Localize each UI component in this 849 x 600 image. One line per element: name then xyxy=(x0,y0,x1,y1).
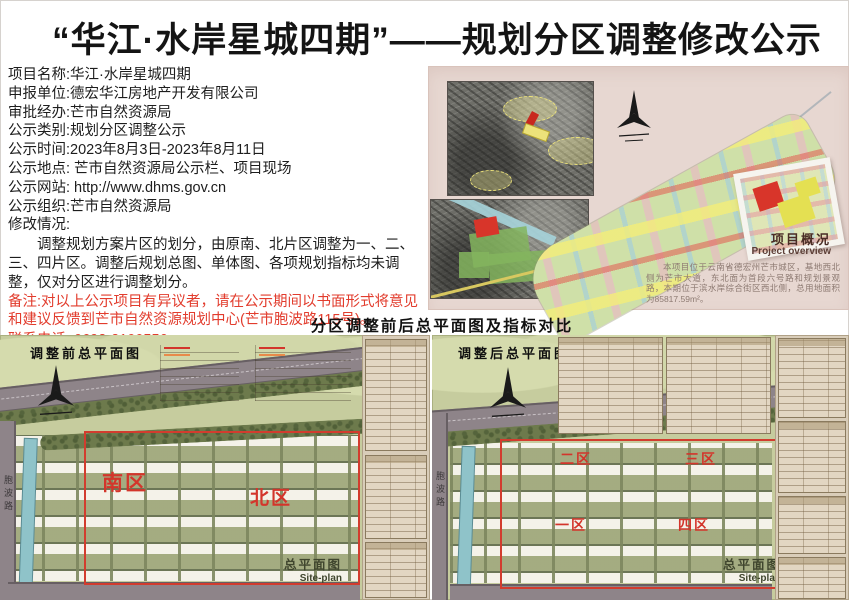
overview-description: 本项目位于云南省德宏州芒市城区，基地西北侧为芒市大道，东北面为首段六号路和规划景… xyxy=(646,262,840,304)
indicator-table xyxy=(365,455,427,539)
info-line-modification-heading: 修改情况: xyxy=(8,216,426,235)
site-plan-before: 调整前总平面图 南区 北区 胞波路 总平面图 Site-plan xyxy=(0,335,430,600)
zone-label-1: 一区 xyxy=(555,515,587,535)
plan-title-before: 调整前总平面图 xyxy=(30,343,142,362)
info-line-applicant: 申报单位:德宏华江房地产开发有限公司 xyxy=(8,85,426,104)
place-label-oval xyxy=(470,170,512,191)
indicator-table xyxy=(558,337,663,434)
info-line-location: 公示地点: 芒市自然资源局公示栏、项目现场 xyxy=(8,160,426,179)
indicator-table xyxy=(365,542,427,598)
plan-footer-zh: 总平面图 xyxy=(284,559,342,572)
zone-label-3: 三区 xyxy=(685,449,717,469)
indicator-table xyxy=(778,338,846,418)
info-line-website: 公示网站: http://www.dhms.gov.cn xyxy=(8,179,426,198)
indicator-table xyxy=(666,337,771,434)
place-label-oval xyxy=(548,137,593,165)
info-line-organizer: 公示组织:芒市自然资源局 xyxy=(8,198,426,217)
indicator-table xyxy=(778,496,846,554)
indicator-table-strip xyxy=(775,335,849,600)
road-name-label: 胞波路 xyxy=(2,475,15,514)
modification-detail: 调整规划方案片区的划分，由原南、北片区调整为一、二、三、四片区。调整后规划总图、… xyxy=(8,236,426,292)
plan-title-after: 调整后总平面图 xyxy=(458,343,570,362)
north-compass-icon xyxy=(484,365,532,427)
indicator-table xyxy=(778,557,846,599)
zone-label-4: 四区 xyxy=(678,515,710,535)
road-name-label: 胞波路 xyxy=(434,471,447,510)
aerial-photo-top xyxy=(448,82,593,195)
project-overview-panel: 项目概况 Project overview 本项目位于云南省德宏州芒市城区，基地… xyxy=(428,66,849,310)
zone-label-south: 南区 xyxy=(102,467,148,497)
overview-heading: 项目概况 xyxy=(752,234,831,246)
info-line-category: 公示类别:规划分区调整公示 xyxy=(8,122,426,141)
overview-heading-en: Project overview xyxy=(752,246,831,258)
plan-footer-en: Site-plan xyxy=(723,572,781,585)
info-line-project-name: 项目名称:华江·水岸星城四期 xyxy=(8,66,426,85)
indicator-table-strip xyxy=(362,335,430,600)
north-compass-icon xyxy=(32,363,80,425)
announcement-poster: “华江·水岸星城四期”——规划分区调整修改公示 项目名称:华江·水岸星城四期 申… xyxy=(0,0,849,600)
site-tag xyxy=(523,124,549,141)
project-info-block: 项目名称:华江·水岸星城四期 申报单位:德宏华江房地产开发有限公司 审批经办:芒… xyxy=(8,66,426,350)
page-title: “华江·水岸星城四期”——规划分区调整修改公示 xyxy=(35,12,839,63)
plan-footer-zh: 总平面图 xyxy=(723,559,781,572)
info-line-approver: 审批经办:芒市自然资源局 xyxy=(8,104,426,123)
indicator-table xyxy=(778,421,846,493)
indicator-table xyxy=(365,339,427,451)
info-line-period: 公示时间:2023年8月3日-2023年8月11日 xyxy=(8,141,426,160)
plan-footer: 总平面图 Site-plan xyxy=(723,559,781,585)
zone-label-2: 二区 xyxy=(560,449,592,469)
zone-label-north: 北区 xyxy=(250,483,292,510)
plan-footer-en: Site-plan xyxy=(284,572,342,585)
section-caption: 分区调整前后总平面图及指标对比 xyxy=(35,314,849,336)
plan-footer: 总平面图 Site-plan xyxy=(284,559,342,585)
north-compass-icon xyxy=(613,88,655,146)
site-plan-after: 调整后总平面图 二区 三区 一区 四区 胞波路 总平面图 Site-plan xyxy=(432,335,849,600)
overview-heading-block: 项目概况 Project overview xyxy=(752,234,831,258)
notes-table xyxy=(255,345,351,401)
green-zone xyxy=(459,252,489,278)
legend-table xyxy=(160,345,239,401)
